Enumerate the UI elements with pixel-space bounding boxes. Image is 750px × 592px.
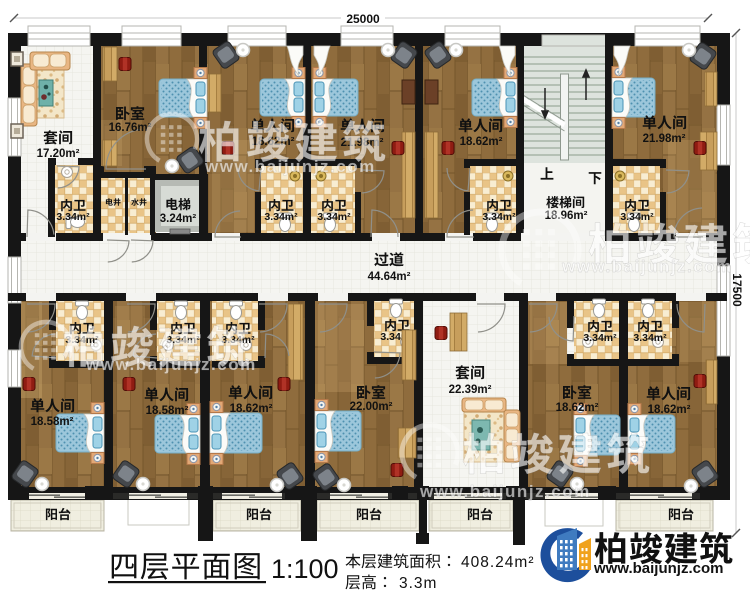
svg-text:18.62m²: 18.62m²	[230, 403, 273, 415]
svg-text:3.34m²: 3.34m²	[583, 332, 617, 344]
svg-text:3.34m²: 3.34m²	[56, 211, 90, 223]
svg-text:18.62m²: 18.62m²	[648, 404, 691, 416]
svg-text:www.baijunjz.com: www.baijunjz.com	[593, 560, 723, 577]
svg-text:25000: 25000	[346, 12, 380, 26]
svg-text:17.20m²: 17.20m²	[37, 148, 80, 160]
svg-text:3.34m²: 3.34m²	[633, 332, 667, 344]
svg-text:1:100: 1:100	[271, 554, 339, 584]
svg-text:21.98m²: 21.98m²	[643, 133, 686, 145]
svg-text:22.39m²: 22.39m²	[449, 384, 492, 396]
svg-text:www.baijunjz.com: www.baijunjz.com	[204, 157, 376, 176]
svg-text:18.58m²: 18.58m²	[146, 405, 189, 417]
svg-text:3.3m: 3.3m	[399, 575, 437, 592]
svg-text:408.24m²: 408.24m²	[461, 554, 534, 571]
svg-text:18.62m²: 18.62m²	[556, 402, 599, 414]
svg-text:3.34m²: 3.34m²	[620, 211, 654, 223]
svg-text:www.baijunjz.com: www.baijunjz.com	[561, 257, 733, 276]
svg-text:3.34m²: 3.34m²	[264, 211, 298, 223]
svg-text:44.64m²: 44.64m²	[368, 271, 411, 283]
svg-text:22.00m²: 22.00m²	[350, 401, 393, 413]
svg-text:18.62m²: 18.62m²	[460, 136, 503, 148]
svg-text:www.baijunjz.com: www.baijunjz.com	[85, 355, 257, 374]
svg-text:3.24m²: 3.24m²	[160, 213, 197, 225]
svg-text:3.34m²: 3.34m²	[317, 211, 351, 223]
svg-text:17500: 17500	[730, 273, 744, 307]
svg-text:www.baijunjz.com: www.baijunjz.com	[419, 482, 591, 501]
svg-text:18.58m²: 18.58m²	[31, 416, 74, 428]
svg-text:16.76m²: 16.76m²	[109, 122, 152, 134]
